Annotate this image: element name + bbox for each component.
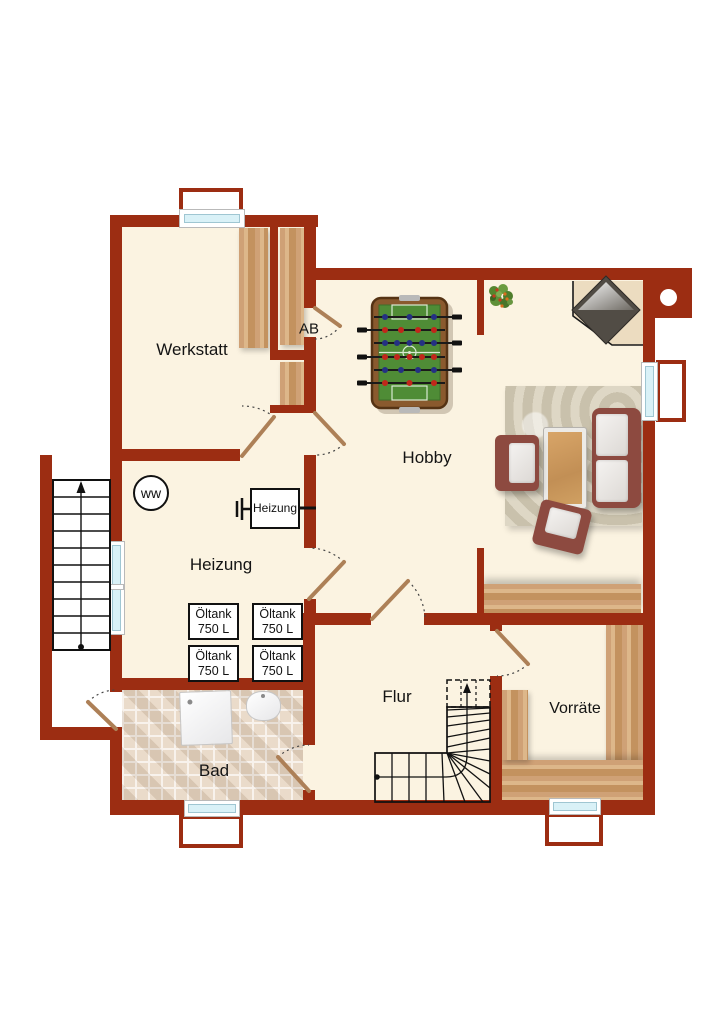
door-swing bbox=[88, 690, 116, 702]
oil-tank-name: Öltank bbox=[259, 649, 295, 663]
door-leaf bbox=[315, 413, 344, 444]
oil-tank: Öltank 750 L bbox=[188, 603, 239, 640]
room-label-werkstatt: Werkstatt bbox=[156, 340, 227, 360]
oil-tank-capacity: 750 L bbox=[198, 622, 229, 636]
oil-tank-capacity: 750 L bbox=[198, 664, 229, 678]
fireplace bbox=[572, 276, 643, 345]
room-label-vorraete: Vorräte bbox=[549, 700, 601, 718]
furnace-label: Heizung bbox=[253, 502, 297, 516]
furnace: Heizung bbox=[250, 488, 300, 529]
room-label-hobby: Hobby bbox=[402, 448, 451, 468]
door-leaf bbox=[372, 581, 408, 619]
exterior-staircase bbox=[53, 480, 110, 650]
oil-tank-capacity: 750 L bbox=[262, 622, 293, 636]
basement-floor-plan: ww Heizung Öltank 750 L Öltank 750 L Ölt… bbox=[0, 0, 723, 1024]
foosball-table bbox=[357, 295, 462, 414]
door-leaf bbox=[309, 562, 344, 599]
oil-tank-capacity: 750 L bbox=[262, 664, 293, 678]
door-leaf bbox=[242, 417, 274, 456]
door-leaf bbox=[278, 757, 309, 791]
plan-linework bbox=[0, 0, 723, 1024]
oil-tank: Öltank 750 L bbox=[252, 645, 303, 682]
door-swing bbox=[315, 444, 344, 455]
door-swing bbox=[497, 664, 528, 676]
door-leaf bbox=[497, 631, 528, 664]
water-heater-label: ww bbox=[141, 485, 161, 501]
oil-tank-name: Öltank bbox=[259, 607, 295, 621]
oil-tank-name: Öltank bbox=[195, 649, 231, 663]
door-swing bbox=[309, 548, 344, 562]
door-swing bbox=[242, 406, 274, 417]
room-label-heizung: Heizung bbox=[190, 555, 252, 575]
room-label-flur: Flur bbox=[382, 687, 411, 707]
door-swing bbox=[278, 745, 309, 757]
door-leaf bbox=[88, 702, 116, 729]
water-heater: ww bbox=[133, 475, 169, 511]
plant-icon bbox=[489, 284, 513, 308]
room-label-ab: AB bbox=[299, 321, 319, 338]
oil-tank: Öltank 750 L bbox=[188, 645, 239, 682]
oil-tank-name: Öltank bbox=[195, 607, 231, 621]
room-label-bad: Bad bbox=[199, 761, 229, 781]
doors bbox=[88, 308, 528, 791]
door-swing bbox=[408, 581, 425, 619]
oil-tank: Öltank 750 L bbox=[252, 603, 303, 640]
